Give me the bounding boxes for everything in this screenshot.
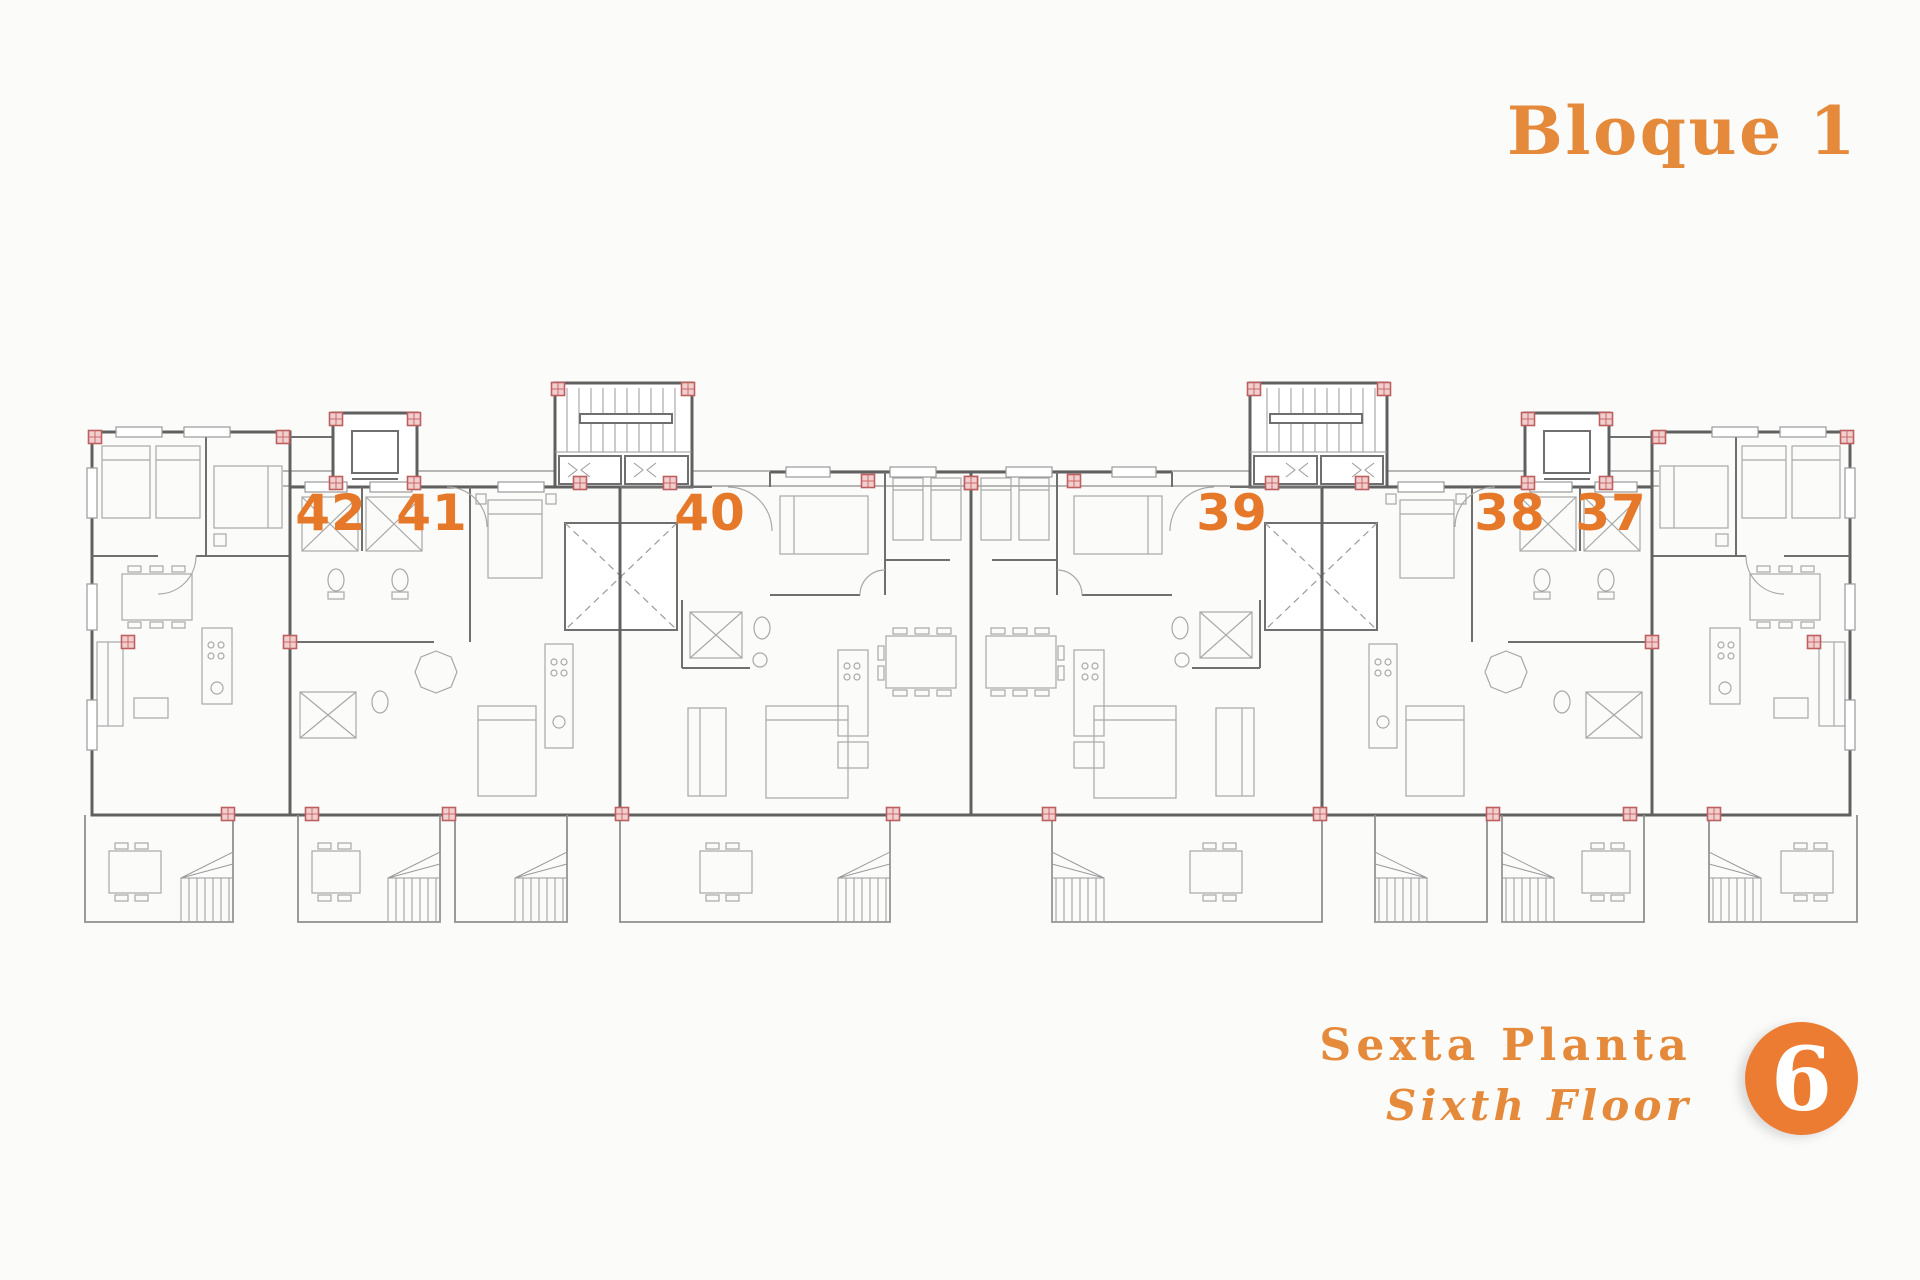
elevator-box <box>333 413 417 487</box>
terraces <box>85 815 890 922</box>
stair-core <box>555 383 692 487</box>
floor-number-badge: 6 <box>1745 1022 1858 1135</box>
unit-number-40: 40 <box>674 484 746 542</box>
central-unit-block <box>620 467 971 815</box>
page: Bloque 1 42 41 40 39 38 37 Sexta Planta … <box>0 0 1920 1280</box>
building-right-half <box>965 383 1858 923</box>
unit-number-37: 37 <box>1575 484 1647 542</box>
block-title: Bloque 1 <box>1507 92 1858 170</box>
unit-number-41: 41 <box>396 484 468 542</box>
unit-number-39: 39 <box>1196 484 1268 542</box>
floor-number: 6 <box>1771 1027 1832 1131</box>
floor-name-es: Sexta Planta <box>1319 1020 1692 1071</box>
unit-number-38: 38 <box>1474 484 1546 542</box>
building-left-half <box>85 383 978 923</box>
column-markers <box>89 383 978 821</box>
unit-number-42: 42 <box>295 484 367 542</box>
disclaimer: Imagen informativa sin escala / Informat… <box>0 1210 1916 1280</box>
floor-labels: Sexta Planta Sixth Floor <box>1319 1020 1692 1130</box>
floor-name-en: Sixth Floor <box>1319 1081 1692 1130</box>
